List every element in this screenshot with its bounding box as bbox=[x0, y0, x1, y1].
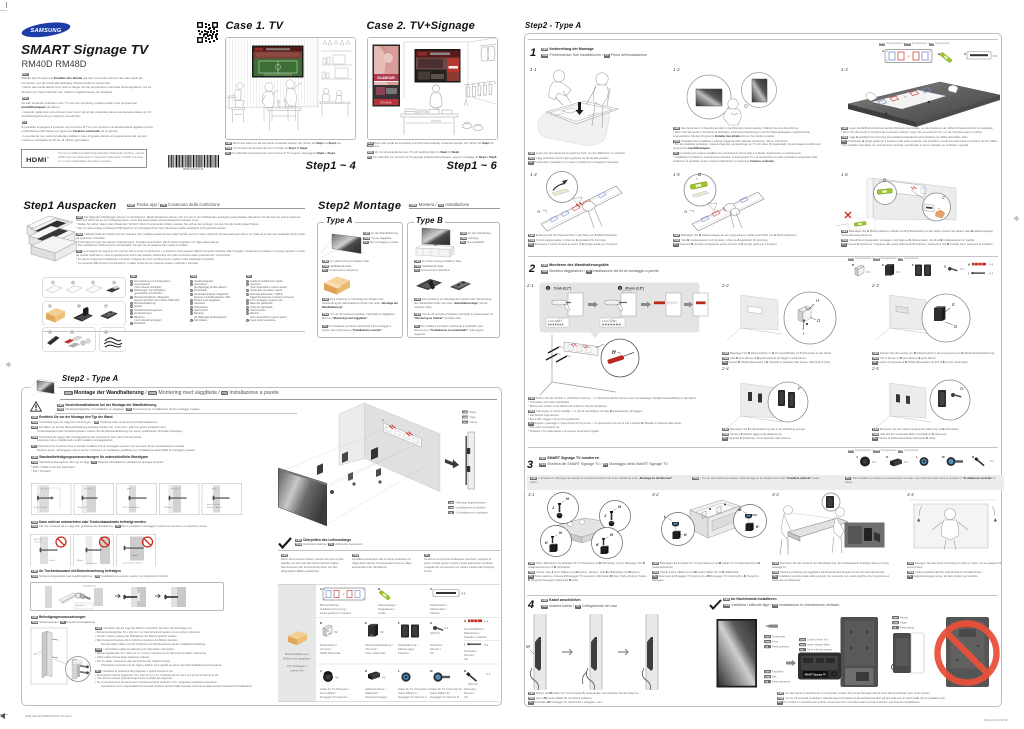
svg-text:X 4: X 4 bbox=[484, 643, 489, 647]
svg-text:H: H bbox=[464, 619, 466, 623]
svg-text:A: A bbox=[320, 587, 323, 591]
svg-text:E: E bbox=[882, 263, 884, 267]
svg-text:GER: GER bbox=[765, 636, 770, 638]
svg-text:B: B bbox=[378, 587, 381, 591]
svg-text:GER: GER bbox=[449, 502, 454, 504]
svg-text:N: N bbox=[566, 496, 569, 501]
svg-text:Hållarstöd /: Hållarstöd / bbox=[365, 691, 379, 695]
svg-text:Beton PW, MDF: Beton PW, MDF bbox=[34, 506, 48, 509]
svg-text:X 4: X 4 bbox=[990, 459, 994, 463]
svg-text:N: N bbox=[464, 669, 466, 673]
svg-text:L: L bbox=[916, 455, 918, 459]
svg-text:A: A bbox=[536, 209, 540, 214]
svg-text:38~70mm: 38~70mm bbox=[171, 489, 180, 491]
svg-text:B: B bbox=[698, 172, 701, 177]
svg-text:K: K bbox=[365, 669, 368, 673]
svg-text:G: G bbox=[430, 621, 433, 625]
svg-text:B: B bbox=[883, 178, 886, 183]
svg-text:nedre vänstra delen: nedre vänstra delen bbox=[807, 643, 830, 647]
svg-text:Beton: Beton bbox=[212, 488, 217, 491]
svg-text:Armed Concrete: Armed Concrete bbox=[207, 503, 220, 506]
svg-text:PW Beton: PW Beton bbox=[164, 506, 172, 509]
svg-text:X2: X2 bbox=[334, 630, 338, 634]
svg-text:X 4: X 4 bbox=[989, 263, 993, 267]
svg-text:Beton PW: Beton PW bbox=[78, 506, 86, 509]
svg-text:I: I bbox=[464, 643, 465, 647]
svg-text:SWE: SWE bbox=[800, 644, 806, 646]
svg-text:GER: GER bbox=[800, 639, 805, 641]
svg-text:H: H bbox=[612, 350, 616, 356]
svg-text:Miniwandhalterung /: Miniwandhalterung / bbox=[285, 652, 309, 656]
svg-text:X2: X2 bbox=[382, 676, 386, 680]
svg-text:Schraube /: Schraube / bbox=[464, 649, 477, 653]
svg-text:Fissaggio TV superiore: Fissaggio TV superiore bbox=[320, 695, 348, 699]
svg-text:Linker unterer Teil: Linker unterer Teil bbox=[807, 638, 828, 642]
svg-text:Viti: Viti bbox=[464, 657, 468, 661]
svg-text:J: J bbox=[320, 669, 322, 673]
svg-text:Nivåjusterare /: Nivåjusterare / bbox=[378, 607, 396, 611]
svg-text:Adesivo: Adesivo bbox=[430, 611, 440, 615]
svg-text:Schraube /: Schraube / bbox=[464, 687, 477, 691]
svg-text:Livella: Livella bbox=[378, 611, 386, 615]
svg-text:×: × bbox=[904, 95, 906, 99]
svg-text:E: E bbox=[365, 621, 367, 625]
svg-text:D: D bbox=[852, 263, 855, 267]
svg-text:51mm(2"): 51mm(2") bbox=[74, 662, 83, 664]
svg-text:Piastrina: Piastrina bbox=[398, 651, 409, 655]
svg-text:X 2: X 2 bbox=[444, 626, 449, 630]
svg-text:Cannot install on drywall: Cannot install on drywall bbox=[122, 561, 142, 564]
svg-text:X 8: X 8 bbox=[461, 592, 466, 596]
svg-text:Wandhalterung /: Wandhalterung / bbox=[398, 643, 418, 647]
svg-text:Nedre hållare A /: Nedre hållare A / bbox=[398, 691, 418, 695]
svg-text:Halter für TV-Oberseite /: Halter für TV-Oberseite / bbox=[320, 687, 349, 691]
svg-text:(M8X40): (M8X40) bbox=[468, 682, 478, 686]
svg-text:Plastankare /: Plastankare / bbox=[464, 631, 480, 635]
svg-text:Fram: Fram bbox=[772, 640, 778, 644]
svg-text:<Installationen är slutförd>: <Installationen är slutförd> bbox=[456, 506, 487, 510]
svg-text:ITA: ITA bbox=[765, 680, 769, 683]
svg-text:Tassello in plastica: Tassello in plastica bbox=[464, 635, 487, 639]
svg-text:Nedre hållare B /: Nedre hållare B / bbox=[430, 691, 450, 695]
svg-text:N: N bbox=[559, 530, 562, 535]
svg-text:Klebestreifen /: Klebestreifen / bbox=[430, 603, 447, 607]
svg-text:Klistermärke /: Klistermärke / bbox=[430, 607, 447, 611]
svg-text:670-4130: 670-4130 bbox=[380, 101, 391, 105]
svg-text:Parte destra: Parte destra bbox=[900, 626, 915, 630]
svg-text:Parte posteriore: Parte posteriore bbox=[772, 680, 791, 684]
svg-text:C: C bbox=[964, 52, 967, 56]
svg-text:PW - Beton Hartholz: PW - Beton Hartholz bbox=[123, 506, 139, 509]
svg-text:X 2: X 2 bbox=[960, 267, 964, 271]
svg-text:Kunststoffdübel /: Kunststoffdübel / bbox=[464, 627, 484, 631]
svg-text:N: N bbox=[610, 532, 613, 537]
svg-text:KIT montaggio a: KIT montaggio a bbox=[287, 664, 307, 668]
svg-text:Schraube /: Schraube / bbox=[430, 643, 443, 647]
svg-text:Inre fixte /: Inre fixte / bbox=[320, 647, 332, 651]
svg-text:Fästets vägg /: Fästets vägg / bbox=[398, 647, 415, 651]
svg-text:SWE: SWE bbox=[463, 417, 469, 419]
svg-text:X 4: X 4 bbox=[989, 272, 993, 276]
svg-text:38~70mm: 38~70mm bbox=[84, 489, 93, 491]
svg-text:N: N bbox=[972, 455, 974, 459]
svg-text:parete mini: parete mini bbox=[290, 669, 304, 673]
svg-text:<Montage abgeschlossen>: <Montage abgeschlossen> bbox=[456, 501, 488, 505]
svg-text:Höger: Höger bbox=[900, 621, 907, 625]
svg-text:5 mm (0.2"): 5 mm (0.2") bbox=[554, 287, 571, 291]
svg-text:X2: X2 bbox=[380, 630, 384, 634]
svg-text:9 mm (11/32"): 9 mm (11/32") bbox=[602, 320, 617, 323]
svg-text:SWE: SWE bbox=[765, 641, 771, 643]
svg-text:F: F bbox=[798, 386, 801, 391]
svg-text:Bohrschablone /: Bohrschablone / bbox=[320, 603, 340, 607]
svg-text:SWE: SWE bbox=[765, 676, 771, 678]
svg-text:M: M bbox=[942, 455, 945, 459]
svg-text:F: F bbox=[912, 263, 914, 267]
svg-text:Supporto fissaggio: Supporto fissaggio bbox=[365, 695, 388, 699]
svg-text:Distanzstück /: Distanzstück / bbox=[320, 643, 337, 647]
svg-text:X 4: X 4 bbox=[484, 620, 489, 624]
svg-text:GER: GER bbox=[463, 412, 468, 414]
svg-text:< 38mm: < 38mm bbox=[48, 559, 55, 562]
svg-text:X 8: X 8 bbox=[993, 54, 998, 58]
svg-text:Winkel med väggfäste /: Winkel med väggfäste / bbox=[283, 657, 311, 661]
svg-text:GLAMOUR: GLAMOUR bbox=[377, 76, 395, 80]
svg-text:×: × bbox=[343, 593, 345, 597]
svg-text:C: C bbox=[430, 587, 433, 591]
svg-text:2 mm (3/64"): 2 mm (3/64") bbox=[548, 320, 562, 323]
svg-text:reinforcement: reinforcement bbox=[86, 562, 97, 565]
svg-text:Concrete: Concrete bbox=[34, 540, 41, 543]
svg-text:X2: X2 bbox=[335, 676, 339, 680]
svg-text:X 2: X 2 bbox=[904, 460, 908, 464]
svg-text:H: H bbox=[968, 263, 970, 267]
svg-text:X 2: X 2 bbox=[866, 270, 870, 274]
svg-text:I: I bbox=[968, 272, 969, 276]
svg-text:Foglio guida per il trapano: Foglio guida per il trapano bbox=[320, 611, 352, 615]
svg-text:Rechts: Rechts bbox=[900, 616, 909, 620]
svg-text:ITA: ITA bbox=[463, 421, 467, 424]
svg-text:Övre hållare /: Övre hållare / bbox=[320, 691, 336, 695]
svg-text:ITA: ITA bbox=[765, 645, 769, 648]
svg-text:SWE: SWE bbox=[449, 507, 455, 509]
svg-text:M: M bbox=[430, 669, 433, 673]
svg-text:Without: Without bbox=[77, 559, 84, 562]
svg-text:Viti: Viti bbox=[464, 695, 468, 699]
svg-text:G: G bbox=[944, 265, 947, 269]
svg-text:(M5X15): (M5X15) bbox=[430, 631, 440, 635]
svg-text:SMART Signage TV: SMART Signage TV bbox=[805, 675, 827, 677]
svg-text:2": 2" bbox=[34, 652, 37, 656]
svg-text:Wasserwaage /: Wasserwaage / bbox=[378, 603, 397, 607]
svg-text:A: A bbox=[683, 209, 687, 214]
svg-text:L: L bbox=[398, 669, 400, 673]
svg-text:X 4: X 4 bbox=[486, 672, 491, 676]
svg-text:J: J bbox=[856, 455, 858, 459]
svg-text:<L'installazione è completa>: <L'installazione è completa> bbox=[456, 511, 489, 515]
svg-text:51x102(2"x4"): 51x102(2"x4") bbox=[83, 585, 96, 587]
svg-text:M: M bbox=[526, 644, 530, 649]
svg-text:Guidkark för borrning /: Guidkark för borrning / bbox=[320, 607, 347, 611]
svg-text:Skruvar /: Skruvar / bbox=[430, 647, 441, 651]
svg-text:3mm(0.1"): 3mm(0.1") bbox=[76, 605, 86, 607]
svg-text:Bak: Bak bbox=[772, 675, 777, 679]
svg-text:Skruvar /: Skruvar / bbox=[464, 691, 475, 695]
svg-text:Fissaggio TV inferiore A: Fissaggio TV inferiore A bbox=[398, 695, 427, 699]
svg-text:G: G bbox=[960, 386, 964, 391]
svg-text:Fissaggio TV inferiore B: Fissaggio TV inferiore B bbox=[430, 695, 459, 699]
svg-text:D: D bbox=[320, 621, 323, 625]
svg-text:Parte inferiore sinistra: Parte inferiore sinistra bbox=[807, 648, 833, 652]
svg-text:N: N bbox=[618, 504, 621, 509]
svg-text:SAMSUNG: SAMSUNG bbox=[30, 28, 61, 34]
svg-text:45 mm (2.6"): 45 mm (2.6") bbox=[625, 287, 644, 291]
svg-text:X 2: X 2 bbox=[872, 460, 876, 464]
svg-text:Halter für TV-Unterseite A /: Halter für TV-Unterseite A / bbox=[398, 687, 430, 691]
svg-text:F: F bbox=[398, 621, 400, 625]
svg-text:Hard Rur - Brandf: Hard Rur - Brandf bbox=[207, 507, 222, 509]
svg-text:ITA: ITA bbox=[449, 511, 453, 514]
svg-text:SWE: SWE bbox=[893, 622, 899, 624]
svg-text:Cover distanziale: Cover distanziale bbox=[365, 651, 386, 655]
svg-text:ITA: ITA bbox=[800, 648, 804, 651]
svg-text:Rückseite: Rückseite bbox=[772, 670, 784, 674]
svg-text:K: K bbox=[886, 455, 889, 459]
svg-text:38~70mm: 38~70mm bbox=[41, 489, 50, 491]
svg-text:Vägg: Vägg bbox=[470, 415, 477, 419]
svg-text:Parete: Parete bbox=[470, 420, 478, 424]
svg-text:A: A bbox=[381, 418, 384, 422]
svg-text:A: A bbox=[882, 49, 885, 53]
svg-text:X 2: X 2 bbox=[896, 270, 900, 274]
svg-text:Skruvar /: Skruvar / bbox=[464, 653, 475, 657]
svg-text:Drywall: Drywall bbox=[132, 555, 138, 557]
svg-text:Halteraufnahme /: Halteraufnahme / bbox=[365, 687, 386, 691]
svg-text:Wand: Wand bbox=[470, 410, 477, 414]
svg-text:ITA: ITA bbox=[893, 626, 897, 629]
svg-text:GER: GER bbox=[765, 671, 770, 673]
svg-text:Parte anteriore: Parte anteriore bbox=[772, 645, 790, 649]
svg-text:Staffa distanziale: Staffa distanziale bbox=[320, 651, 341, 655]
svg-text:GER: GER bbox=[893, 617, 898, 619]
svg-text:Viti: Viti bbox=[430, 651, 434, 655]
svg-text:Yttre fixte /: Yttre fixte / bbox=[365, 647, 378, 651]
svg-text:Halter für TV-Unterseite B /: Halter für TV-Unterseite B / bbox=[430, 687, 462, 691]
svg-text:Vorderseite: Vorderseite bbox=[772, 635, 786, 639]
svg-text:Distanzschabdeckung /: Distanzschabdeckung / bbox=[365, 643, 393, 647]
